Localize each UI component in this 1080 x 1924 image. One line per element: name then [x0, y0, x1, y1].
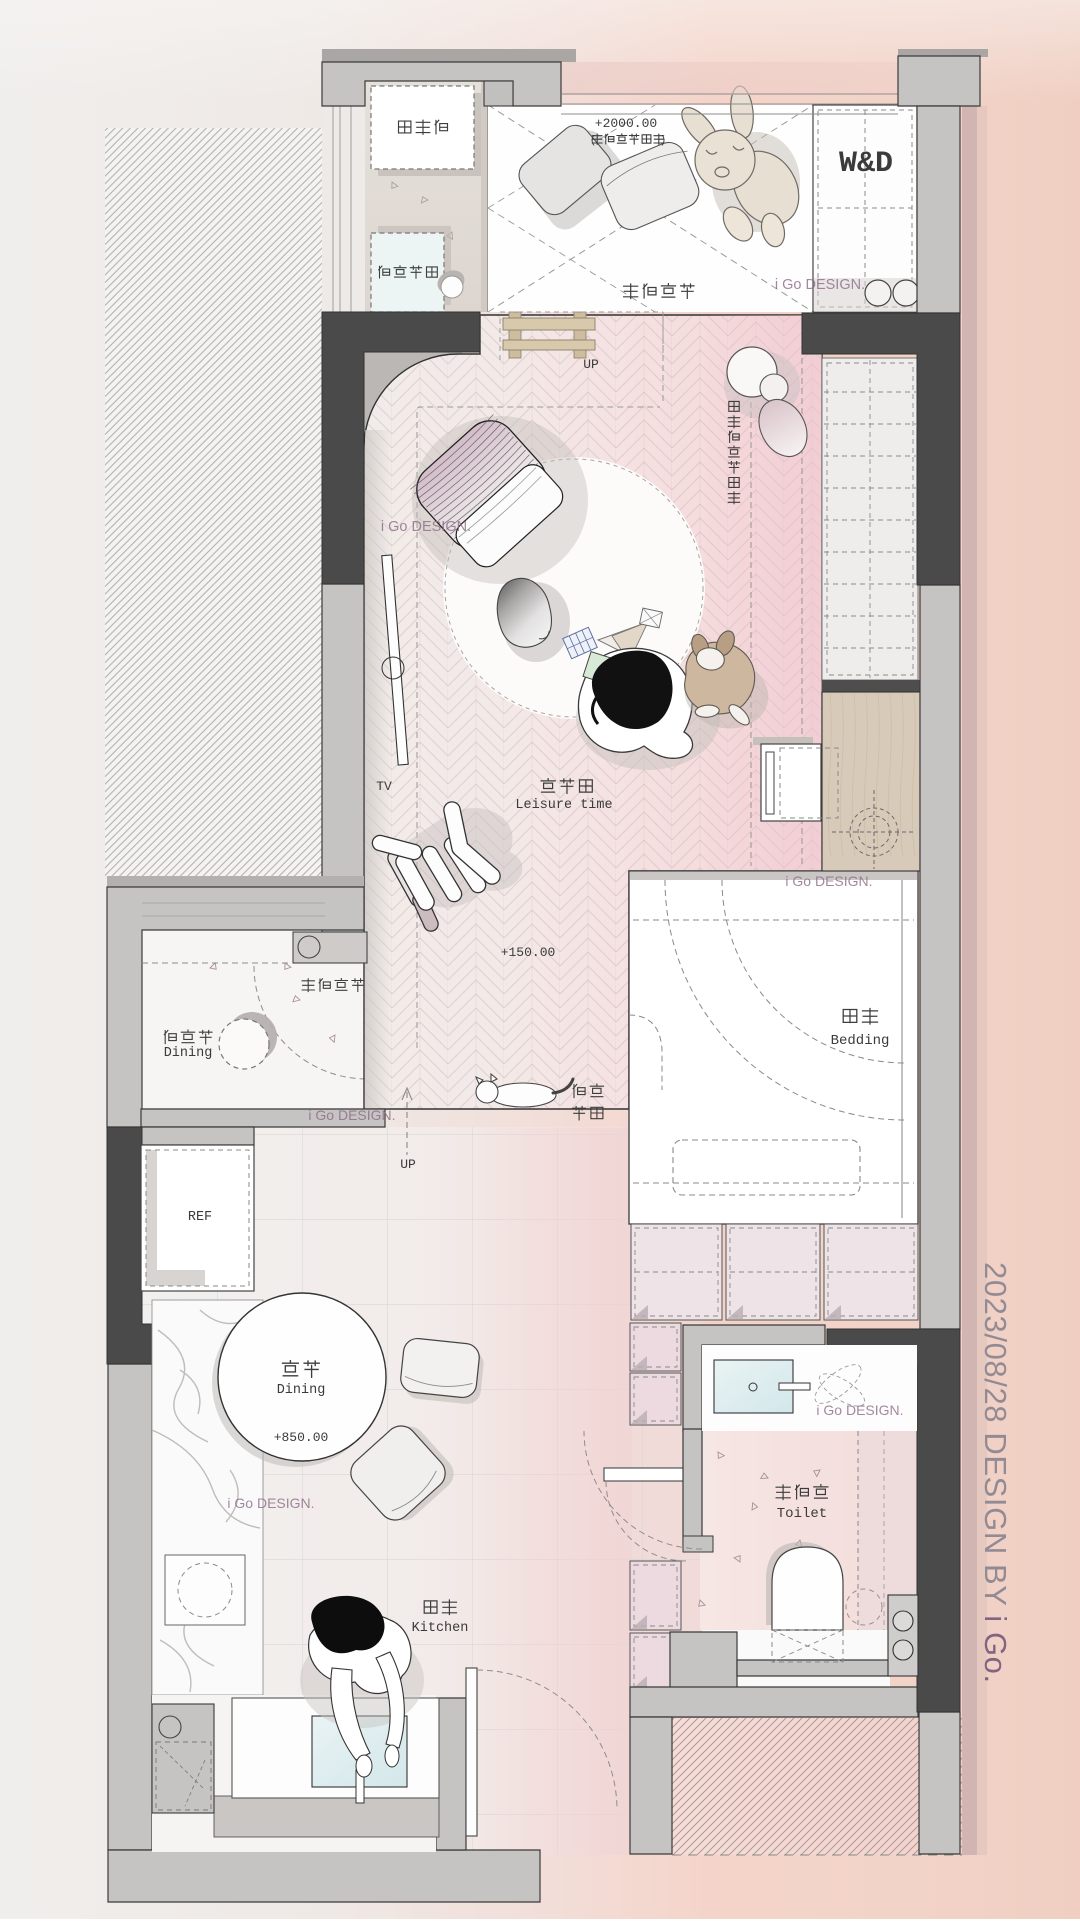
svg-text:i Go DESIGN.: i Go DESIGN.: [785, 873, 872, 889]
svg-text:i Go DESIGN.: i Go DESIGN.: [775, 277, 865, 293]
svg-text:i Go DESIGN.: i Go DESIGN.: [227, 1495, 314, 1511]
svg-text:+850.00: +850.00: [274, 1430, 329, 1445]
svg-text:+2000.00: +2000.00: [595, 116, 657, 131]
svg-text:Kitchen: Kitchen: [412, 1621, 469, 1636]
svg-text:REF: REF: [188, 1210, 212, 1225]
svg-text:+150.00: +150.00: [501, 945, 556, 960]
svg-text:W&D: W&D: [839, 147, 893, 181]
svg-text:Dining: Dining: [164, 1046, 213, 1061]
svg-text:i Go DESIGN.: i Go DESIGN.: [308, 1107, 395, 1123]
svg-text:Dining: Dining: [277, 1383, 326, 1398]
svg-text:(: (: [590, 135, 597, 147]
svg-text:Toilet: Toilet: [777, 1506, 827, 1522]
svg-text:UP: UP: [400, 1157, 416, 1172]
svg-text:i Go DESIGN.: i Go DESIGN.: [381, 519, 471, 535]
svg-text:Bedding: Bedding: [831, 1033, 890, 1049]
svg-text:i Go DESIGN.: i Go DESIGN.: [816, 1402, 903, 1418]
svg-text:Leisure time: Leisure time: [515, 798, 612, 813]
svg-text:TV: TV: [376, 779, 392, 794]
svg-text:): ): [660, 135, 667, 147]
svg-text:UP: UP: [583, 357, 599, 372]
svg-text:2023/08/28 DESIGN BY i Go.: 2023/08/28 DESIGN BY i Go.: [978, 1262, 1013, 1684]
